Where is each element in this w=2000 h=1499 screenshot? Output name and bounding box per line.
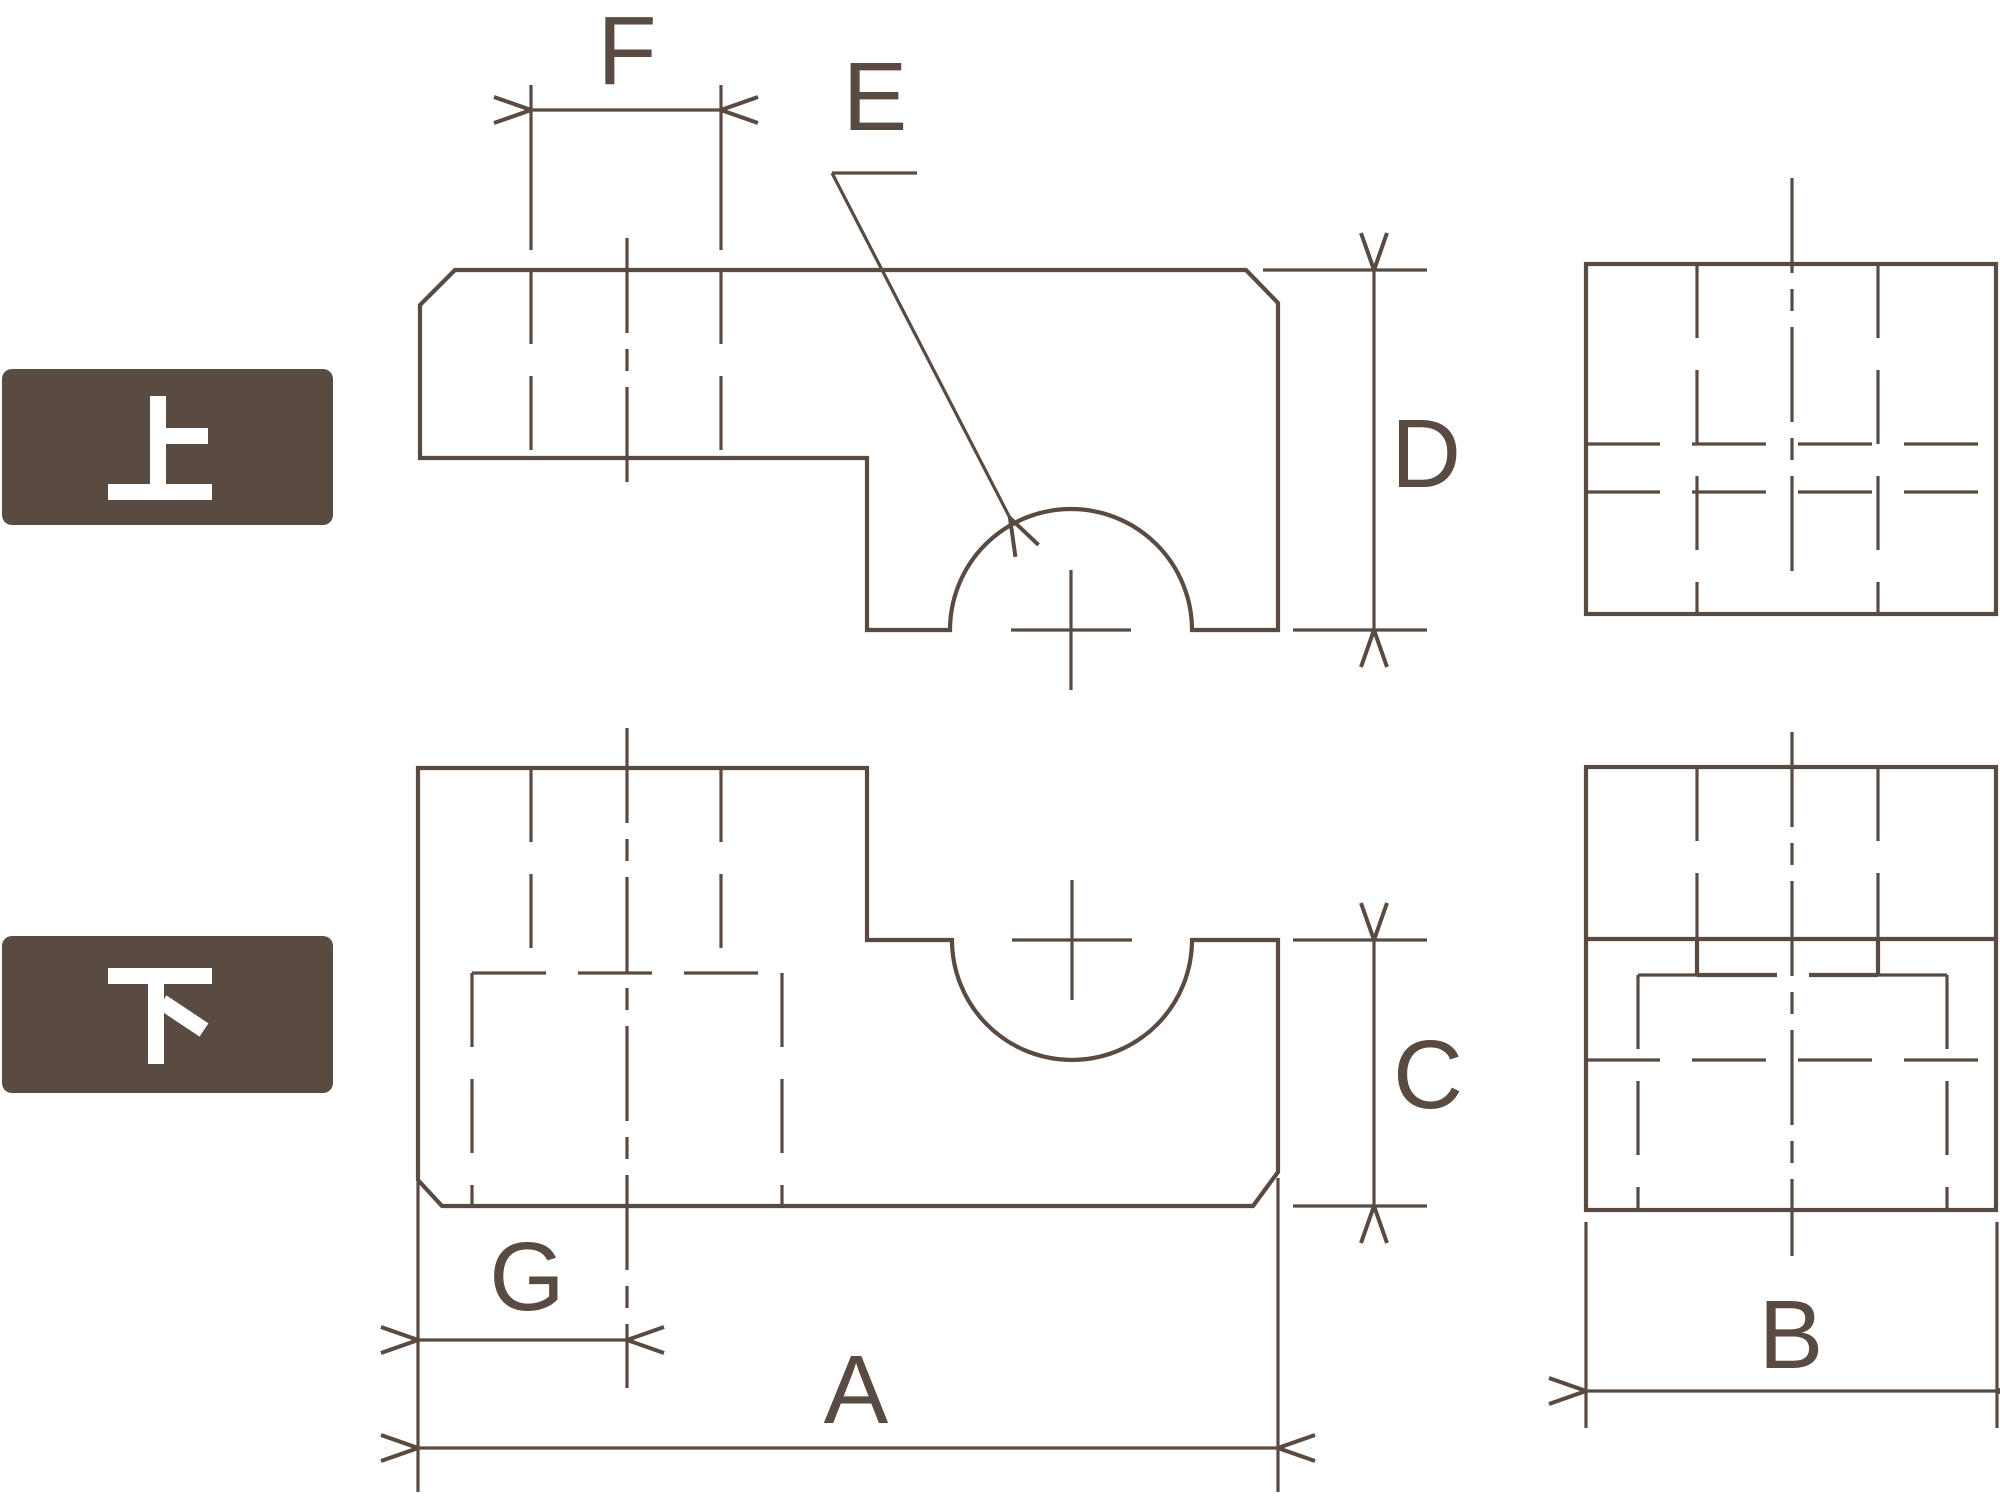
technical-drawing: F E D bbox=[0, 0, 2000, 1499]
dimension-g: G bbox=[418, 1182, 627, 1492]
lower-end-slot-edges bbox=[1697, 939, 1878, 975]
upper-badge-background bbox=[2, 369, 333, 525]
upper-part-outline bbox=[420, 270, 1278, 630]
drawing-canvas: F E D bbox=[0, 0, 2000, 1499]
lower-end-view: B bbox=[1586, 732, 1997, 1428]
upper-end-view bbox=[1586, 178, 1996, 614]
upper-view-badge: 上 bbox=[2, 369, 333, 525]
lower-arc-center-mark bbox=[1012, 880, 1132, 1000]
dimension-label-a: A bbox=[824, 1335, 889, 1444]
dimension-e: E bbox=[832, 42, 1010, 518]
lower-view-badge: 下 bbox=[2, 936, 333, 1093]
dimension-f: F bbox=[531, 0, 721, 250]
dimension-label-f: F bbox=[597, 0, 656, 105]
dimension-d: D bbox=[1263, 270, 1461, 630]
dimension-label-b: B bbox=[1759, 1280, 1824, 1389]
dimension-c: C bbox=[1293, 940, 1463, 1206]
dimension-label-e: E bbox=[843, 42, 908, 151]
dimension-label-d: D bbox=[1391, 399, 1461, 508]
dimension-label-c: C bbox=[1393, 1020, 1463, 1129]
lower-front-view: C G A bbox=[418, 728, 1463, 1492]
dimension-label-g: G bbox=[489, 1222, 564, 1331]
e-leader-line bbox=[832, 173, 1010, 518]
upper-arc-center-mark bbox=[1011, 570, 1131, 690]
lower-part-outline bbox=[418, 768, 1278, 1206]
upper-front-view: F E D bbox=[420, 0, 1461, 690]
